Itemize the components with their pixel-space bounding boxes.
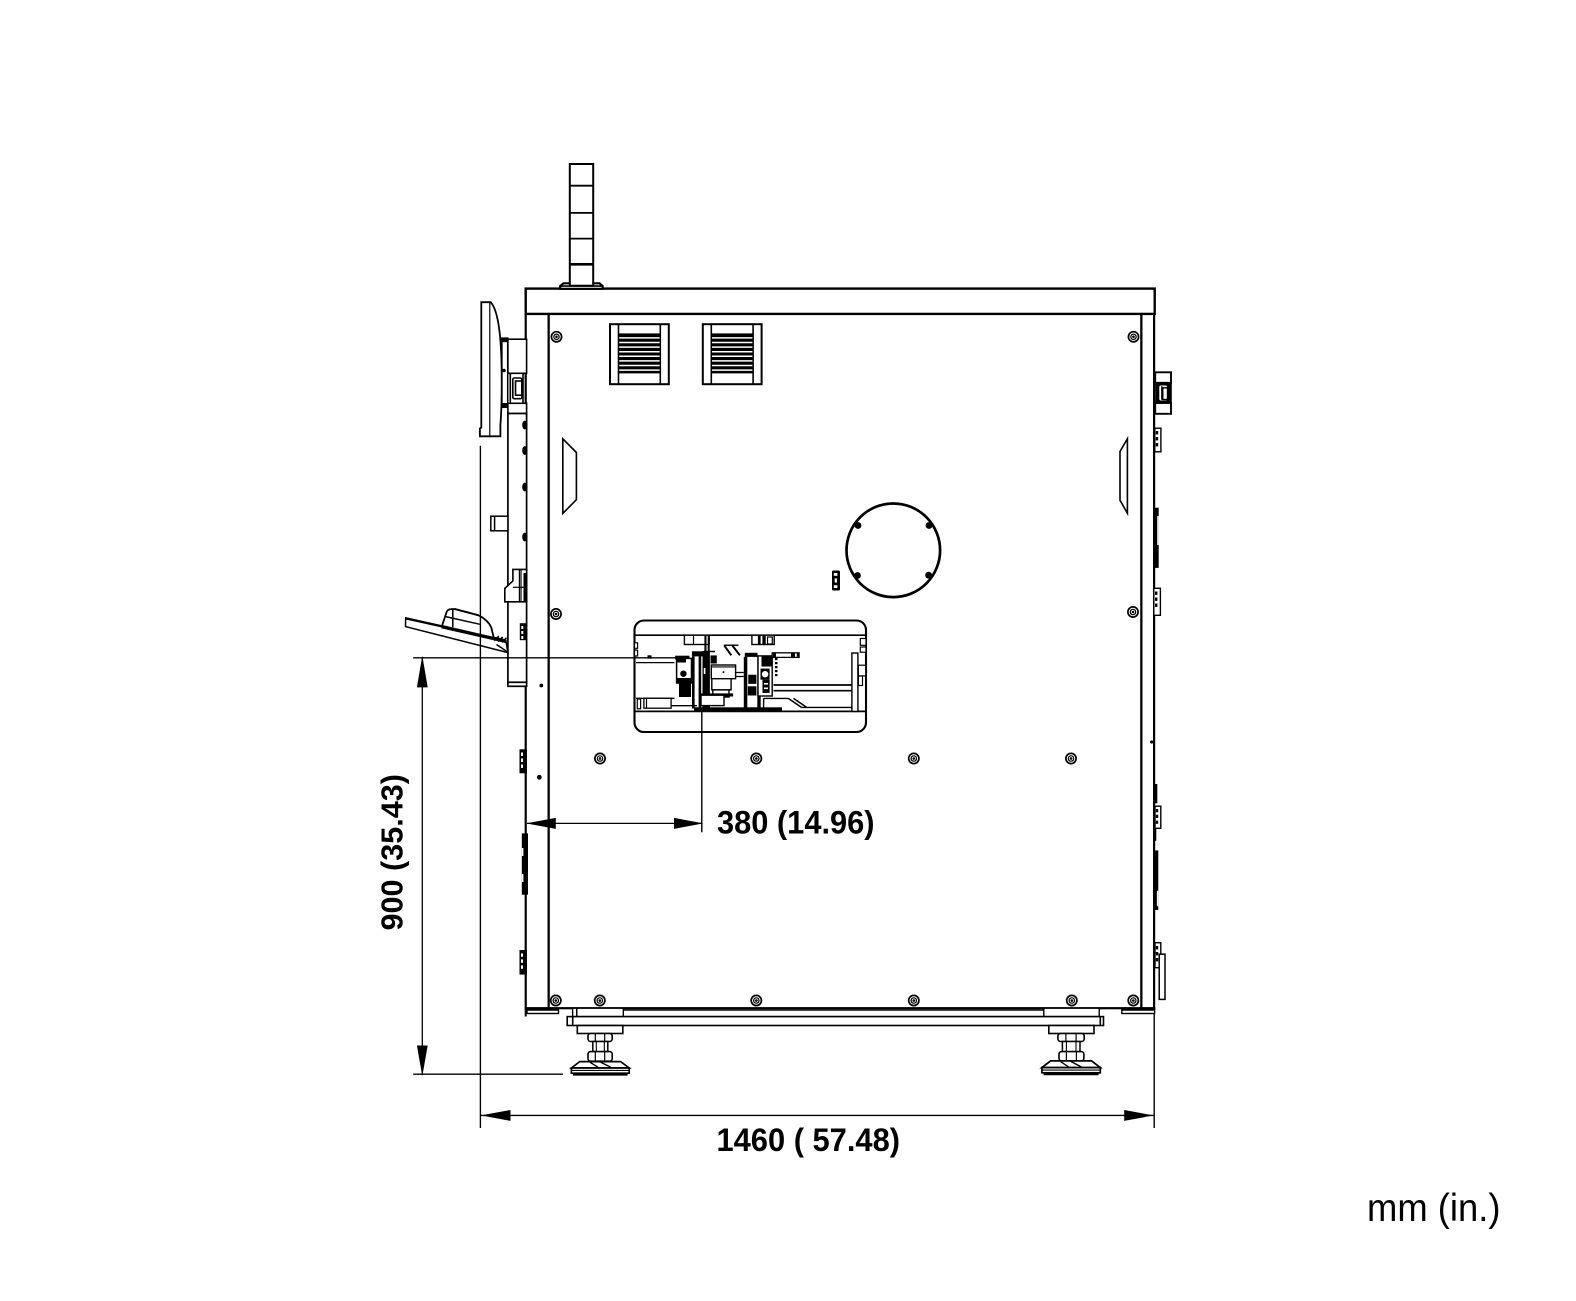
- svg-text:380 (14.96): 380 (14.96): [717, 805, 875, 841]
- svg-text:1460 ( 57.48): 1460 ( 57.48): [717, 1122, 901, 1158]
- svg-text:900 (35.43): 900 (35.43): [375, 774, 410, 931]
- svg-text:mm (in.): mm (in.): [1367, 1187, 1501, 1230]
